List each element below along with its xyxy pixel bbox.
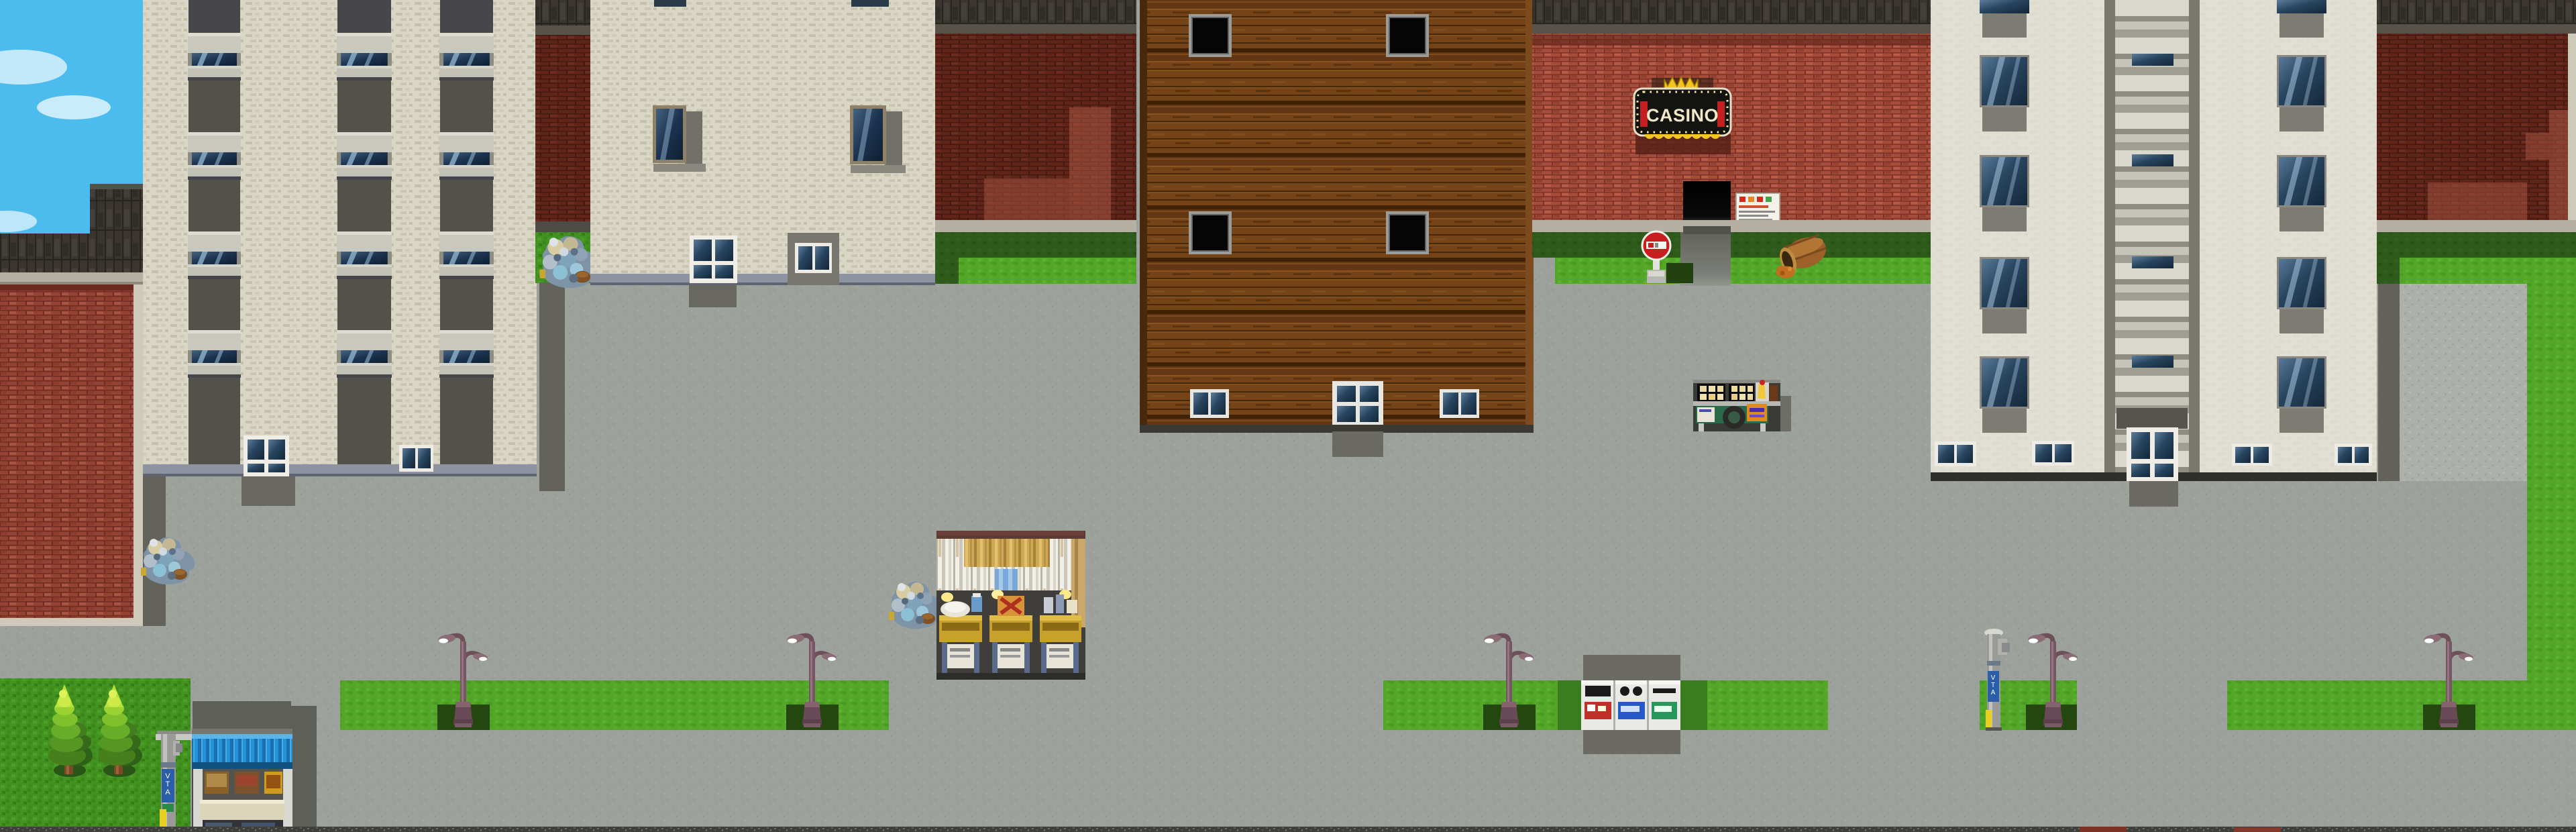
svg-text:A: A <box>165 788 170 796</box>
svg-text:CASINO: CASINO <box>1646 105 1719 125</box>
svg-text:A: A <box>1991 689 1996 696</box>
svg-text:T: T <box>166 780 170 788</box>
svg-text:V: V <box>165 772 170 780</box>
svg-text:T: T <box>1991 682 1995 689</box>
svg-text:V: V <box>1991 674 1996 682</box>
